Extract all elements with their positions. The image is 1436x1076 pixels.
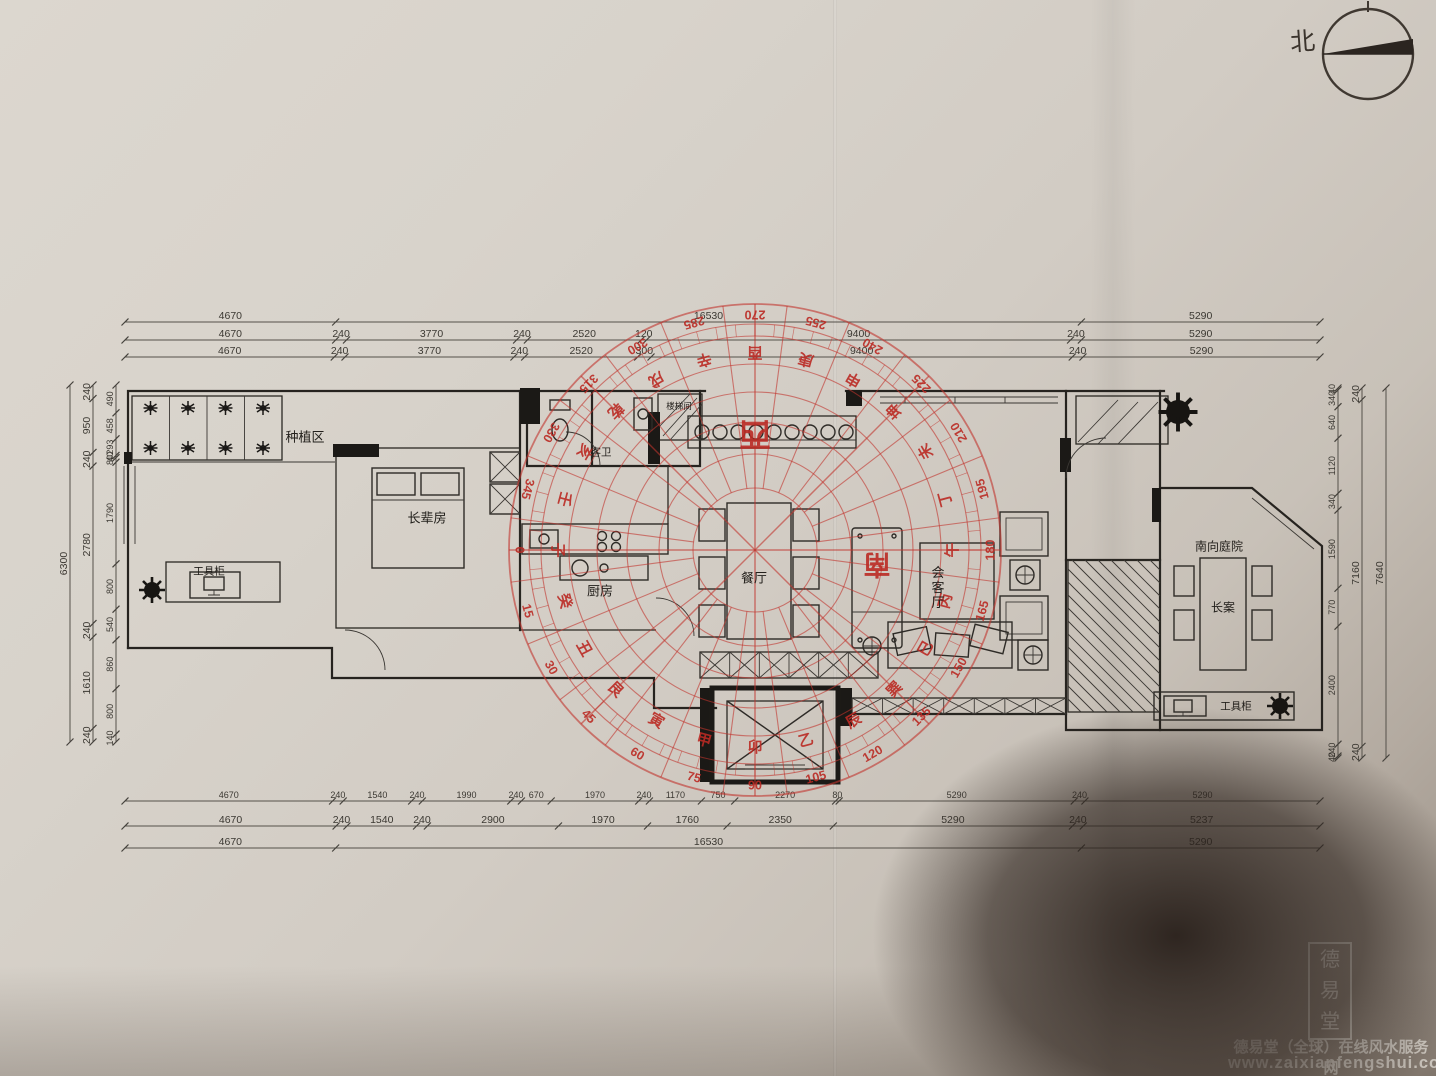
dim-label: 240 (81, 726, 93, 744)
dim-label: 5290 (941, 814, 965, 826)
room-label-planting: 种植区 (285, 427, 324, 446)
dim-label: 3770 (418, 345, 442, 357)
compass-degree-label: 180 (983, 540, 997, 561)
north-label: 北 (1289, 21, 1316, 59)
dim-label: 1610 (81, 671, 93, 695)
dim-label: 1990 (457, 790, 477, 800)
room-label-tool-cabinet-left: 工具柜 (193, 564, 225, 579)
dim-label: 2520 (569, 345, 593, 357)
compass-mountain-label: 庚 (796, 349, 815, 370)
dim-label: 80 (832, 790, 842, 800)
compass-degree-label: 255 (804, 313, 828, 332)
luopan-compass-overlay: 酉270庚255申240坤225未210丁195午180丙165巳150巽135… (509, 304, 1001, 796)
dim-label: 800 (105, 704, 115, 719)
dim-label: 1540 (370, 814, 394, 826)
dim-label: 80 (105, 455, 115, 465)
compass-west-character: 西 (739, 417, 771, 453)
dim-label: 950 (81, 417, 93, 435)
compass-degree-label: 90 (748, 778, 762, 792)
dim-label: 240 (511, 345, 529, 357)
dim-label: 1970 (591, 814, 615, 826)
compass-degree-label: 195 (973, 477, 992, 501)
room-label-south-courtyard: 南向庭院 (1195, 538, 1243, 555)
compass-mountain-label: 丑 (573, 638, 595, 660)
dim-label: 240 (331, 345, 349, 357)
compass-degree-label: 75 (686, 769, 703, 786)
dim-label: 4670 (219, 836, 243, 848)
compass-mountain-label: 巳 (915, 638, 937, 660)
dim-label: 240 (81, 621, 93, 639)
dim-label: 2520 (573, 328, 597, 340)
dim-label: 240 (81, 383, 93, 401)
seal-char: 易 (1320, 981, 1340, 1001)
dim-label: 800 (105, 579, 115, 594)
dim-label: 340 (1327, 494, 1337, 509)
dim-label: 340 (1327, 391, 1337, 406)
dim-label: 240 (1072, 790, 1087, 800)
dim-label: 240 (413, 814, 431, 826)
dim-label: 240 (509, 790, 524, 800)
watermark-seal-logo: 德 易 堂 (1308, 942, 1352, 1040)
dim-label: 4670 (219, 790, 239, 800)
dim-label: 5290 (947, 790, 967, 800)
dim-label: 4670 (219, 328, 243, 340)
dim-label: 240 (513, 328, 531, 340)
room-label-tool-cabinet-right: 工具柜 (1220, 699, 1252, 714)
compass-mountain-label: 酉 (747, 344, 762, 361)
dim-label: 2400 (1327, 675, 1337, 695)
compass-mountain-label: 癸 (554, 590, 576, 611)
dim-label: 860 (105, 657, 115, 672)
north-arrow (1323, 1, 1413, 99)
dim-label: 1590 (1327, 539, 1337, 559)
dim-label: 4670 (219, 310, 243, 322)
dim-label: 1120 (1327, 456, 1337, 475)
dim-label: 140 (105, 731, 115, 746)
photographed-floorplan: 4670165305290467024037702402520120940024… (0, 0, 1436, 1076)
room-label-elder-bedroom: 长辈房 (407, 508, 446, 527)
compass-mountain-label: 卯 (747, 739, 762, 756)
dim-label: 5290 (1189, 836, 1213, 848)
compass-degree-label: 285 (682, 313, 706, 332)
dim-label: 240 (1350, 743, 1362, 761)
dim-label: 5290 (1190, 345, 1214, 357)
seal-char: 堂 (1320, 1012, 1340, 1032)
dim-label: 240 (1350, 385, 1362, 403)
dim-label: 770 (1327, 600, 1337, 615)
dim-label: 240 (1067, 328, 1085, 340)
dim-label: 240 (330, 790, 345, 800)
seal-char: 德 (1320, 950, 1340, 970)
dim-label: 458 (105, 418, 115, 433)
dim-label: 1540 (367, 790, 387, 800)
compass-mountain-label: 乙 (797, 731, 816, 751)
room-label-stairwell: 楼梯间 (666, 400, 692, 412)
room-label-guest-bath: 客卫 (591, 445, 612, 460)
dim-label: 1970 (585, 790, 605, 800)
dim-label: 6300 (58, 552, 70, 576)
dim-label: 4670 (219, 814, 243, 826)
dim-label: 7640 (1374, 561, 1386, 585)
dim-label: 5237 (1190, 814, 1214, 826)
dim-label: 16530 (694, 836, 723, 848)
dim-label: 2900 (481, 814, 505, 826)
dim-label: 240 (1069, 345, 1087, 357)
compass-degree-label: 270 (745, 308, 766, 322)
dim-label: 240 (637, 790, 652, 800)
dim-label: 240 (333, 814, 351, 826)
walls-group (124, 388, 1322, 782)
dim-label: 1790 (105, 503, 115, 523)
dim-label: 5290 (1192, 790, 1212, 800)
dim-label: 5290 (1189, 328, 1213, 340)
dim-label: 540 (105, 617, 115, 632)
dim-label: 5290 (1189, 310, 1213, 322)
room-label-long-table: 长案 (1211, 599, 1235, 616)
dim-label: 640 (1327, 415, 1337, 430)
room-label-dining: 餐厅 (741, 568, 767, 587)
compass-south-character: 南 (864, 549, 891, 579)
room-label-kitchen: 厨房 (587, 581, 613, 600)
dim-label: 40 (1327, 752, 1337, 762)
dim-label: 490 (105, 391, 115, 406)
compass-degree-label: 15 (519, 602, 536, 619)
dim-label: 1170 (666, 790, 685, 800)
compass-mountain-label: 壬 (554, 489, 574, 508)
dim-label: 240 (1069, 814, 1087, 826)
dim-label: 240 (409, 790, 424, 800)
compass-mountain-label: 辛 (694, 349, 713, 370)
compass-mountain-label: 子 (549, 542, 566, 557)
dim-label: 3770 (420, 328, 444, 340)
dim-label: 2780 (81, 533, 93, 557)
compass-degree-label: 0 (513, 547, 527, 554)
dim-label: 4670 (218, 345, 242, 357)
dim-label: 7160 (1350, 561, 1362, 585)
dim-label: 2350 (769, 814, 793, 826)
dim-label: 1760 (676, 814, 700, 826)
watermark-url: www.zaixianfengshui.com (1228, 1054, 1434, 1073)
dim-label: 670 (529, 790, 544, 800)
room-label-reception: 会客厅 (928, 566, 947, 611)
dim-label: 240 (332, 328, 350, 340)
dim-label: 240 (81, 450, 93, 468)
compass-mountain-label: 丁 (936, 489, 956, 508)
compass-mountain-label: 午 (943, 542, 961, 557)
